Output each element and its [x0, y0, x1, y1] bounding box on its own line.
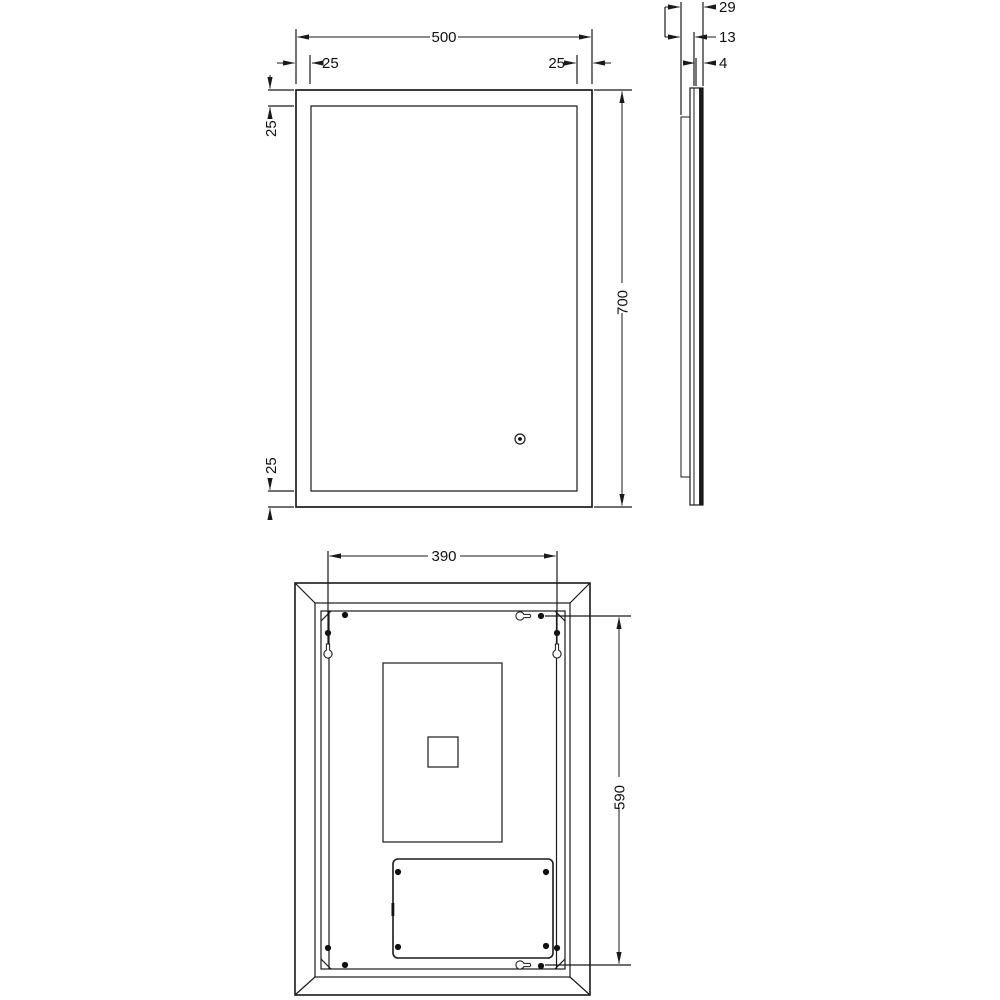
keyhole-hangers [324, 612, 561, 969]
keyhole-hanger-icon [324, 644, 332, 658]
dim-hanger-width: 390 [330, 548, 556, 565]
screw-dot [538, 613, 544, 619]
led-frame-band [296, 90, 592, 507]
screw-dot [538, 963, 544, 969]
screw-dot [543, 869, 549, 875]
back-view: 390 590 [295, 548, 631, 995]
back-panel-corner-folds [321, 611, 565, 969]
dim-inset-top-right: 25 [548, 55, 611, 72]
dim-housing-depth: 13 [665, 29, 736, 46]
dim-overall-height-label: 700 [615, 290, 632, 315]
screws [325, 612, 560, 969]
dim-housing-depth-label: 13 [719, 29, 736, 46]
dim-glass-thickness-label: 4 [719, 55, 727, 72]
frame-mitre-corners [295, 583, 590, 995]
screw-dot [325, 945, 331, 951]
dim-hanger-width-label: 390 [431, 548, 456, 565]
back-panel-sheet [321, 611, 565, 969]
screw-dot [395, 944, 401, 950]
dim-glass-thickness: 4 [683, 55, 727, 72]
dim-hanger-height-label: 590 [612, 785, 629, 810]
keyhole-hanger-icon [553, 644, 561, 658]
screw-dot [342, 612, 348, 618]
keyhole-hanger-icon [516, 612, 531, 620]
driver-box [393, 859, 553, 958]
led-driver-compartment [383, 663, 502, 842]
dim-inset-top-left-label: 25 [322, 55, 339, 72]
driver-box-cable-notch [392, 903, 395, 916]
mirror-outline [296, 90, 592, 507]
dim-inset-left-lower-label: 25 [263, 457, 280, 474]
side-extension-lines [665, 2, 703, 115]
junction-box [428, 737, 458, 767]
dim-overall-width: 500 [298, 29, 591, 46]
dim-overall-depth-label: 29 [719, 0, 736, 16]
screw-dot [554, 945, 560, 951]
back-inner-frame [315, 603, 570, 977]
dim-inset-top-right-label: 25 [548, 55, 565, 72]
screw-dot [395, 869, 401, 875]
dim-inset-top-left: 25 [277, 55, 339, 72]
front-view: 500 25 25 25 25 700 [263, 29, 632, 520]
back-extension-lines [328, 551, 631, 965]
mirror-technical-drawing: 500 25 25 25 25 700 [0, 0, 1000, 1000]
dim-overall-width-label: 500 [431, 29, 456, 46]
dim-hanger-height: 590 [612, 618, 629, 964]
dim-inset-left-lower: 25 [263, 457, 280, 520]
dim-overall-height: 700 [615, 92, 632, 506]
dim-overall-depth: 29 [665, 0, 736, 16]
drawing-canvas: 500 25 25 25 25 700 [0, 0, 1000, 1000]
screw-dot [543, 943, 549, 949]
back-outer-frame [295, 583, 590, 995]
hanging-rails [329, 611, 557, 969]
touch-sensor-icon [515, 434, 525, 444]
dim-inset-left-upper-label: 25 [263, 120, 280, 137]
screw-dot [342, 962, 348, 968]
side-view: 29 13 4 [665, 0, 736, 505]
side-back-housing [681, 117, 690, 477]
keyhole-hanger-icon [516, 961, 531, 969]
